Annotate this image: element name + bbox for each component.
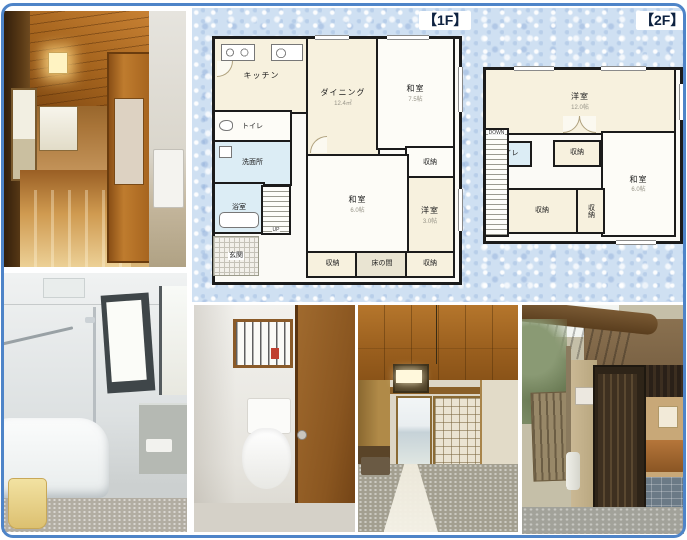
washing-machine [153, 149, 184, 207]
closet-top-2f: 収納 [553, 140, 601, 167]
room-label: トイレ [242, 123, 263, 131]
closet-bottom-left-1f: 収納 [306, 251, 359, 278]
wall-plaque [658, 406, 678, 429]
room-label: 収納 [326, 260, 340, 268]
hallway-left-doorway [11, 88, 37, 182]
hallway-door-glass-panel [114, 98, 144, 184]
toilet-door [295, 305, 355, 532]
floorplan-title-1f: 【1F】 [419, 11, 471, 30]
listing-collage: 【1F】 【2F】 キッチン ダイニング 12.4㎡ 和室 7.5帖 収納 洋室… [0, 0, 687, 540]
room-label: 洋室 [571, 92, 589, 101]
floorplan-2f: 洋室 12.0帖 トイレ 収納 和室 6.0帖 収納 収納 DOWN [483, 67, 683, 244]
room-yoshitsu-3: 洋室 3.0帖 [405, 176, 455, 255]
photo-japanese-room [358, 305, 518, 532]
stairs-down: DOWN [484, 128, 509, 237]
bathtub-icon [219, 212, 259, 228]
room-size: 6.0帖 [350, 205, 364, 214]
floor-items [361, 457, 390, 475]
room-label: 洗面所 [242, 159, 263, 167]
room-size: 12.4㎡ [334, 98, 352, 107]
room-label: 和室 [630, 175, 648, 184]
toilet-bowl [242, 428, 290, 489]
closet-bottom-right-1f: 収納 [405, 251, 455, 278]
window-marker [601, 66, 646, 71]
washbasin-icon [219, 146, 232, 158]
window-marker [458, 67, 463, 112]
door-knob [297, 430, 307, 440]
bathroom-window-right [159, 286, 187, 395]
room-label: ダイニング [321, 88, 366, 97]
room-label: 収納 [423, 159, 437, 167]
room-label: 玄関 [228, 252, 244, 260]
room-label: 洋室 [421, 206, 439, 215]
photo-toilet [194, 305, 355, 532]
window-marker [315, 35, 349, 40]
meter-box [575, 387, 593, 405]
window-sill-object [271, 348, 279, 359]
room-size: 3.0帖 [423, 216, 437, 225]
tatami-ceiling-seams [358, 305, 518, 380]
window-marker [458, 189, 463, 231]
shoji-screen [433, 396, 482, 466]
room-label: 床の間 [372, 260, 393, 268]
window-marker [616, 240, 656, 245]
ceiling-light-panel [396, 370, 422, 384]
noren-curtain [642, 365, 684, 397]
room-label: 和室 [349, 195, 367, 204]
room-label: 収納 [570, 149, 584, 157]
room-size: 12.0帖 [571, 102, 589, 111]
stone-pavement [522, 507, 684, 534]
toilet-window [233, 319, 294, 368]
photo-hallway [2, 11, 186, 267]
photo-bathroom [2, 273, 187, 532]
room-label: 収納 [423, 260, 437, 268]
room-washitsu-7-5: 和室 7.5帖 [376, 37, 455, 150]
room-label: キッチン [244, 71, 280, 80]
stairs-label: DOWN [488, 130, 506, 136]
stove-icon [221, 44, 255, 61]
toilet-icon [219, 120, 233, 131]
stairs-label: UP [272, 227, 281, 233]
room-size: 7.5帖 [408, 94, 422, 103]
tokonoma: 床の間 [355, 251, 409, 278]
shower-head [85, 317, 95, 323]
window-marker [387, 35, 429, 40]
closet-vertical-2f: 収納 [576, 188, 605, 234]
room-yoshitsu-12: 洋室 12.0帖 [484, 68, 676, 135]
stairs-up: UP [261, 185, 291, 235]
closet-right-1f: 収納 [405, 146, 455, 180]
closet-bottom-2f: 収納 [505, 188, 579, 234]
window-marker [514, 66, 554, 71]
toilet-wall-shading [194, 305, 236, 505]
floorplan-title-2f: 【2F】 [636, 11, 687, 30]
window-marker [679, 84, 684, 120]
floorplan-panel: 【1F】 【2F】 キッチン ダイニング 12.4㎡ 和室 7.5帖 収納 洋室… [192, 8, 684, 302]
room-washitsu-6: 和室 6.0帖 [306, 154, 409, 255]
room-washitsu-2f: 和室 6.0帖 [601, 131, 676, 237]
floorplan-1f: キッチン ダイニング 12.4㎡ 和室 7.5帖 収納 洋室 3.0帖 和室 6… [212, 36, 462, 285]
photo-entrance-exterior [522, 305, 684, 534]
light-wire [436, 305, 437, 364]
bathroom-ceiling-vent [43, 278, 86, 298]
bathroom-window-pane [107, 300, 148, 383]
toilet-floor [194, 503, 355, 533]
room-label: 収納 [586, 204, 594, 218]
room-size: 6.0帖 [631, 184, 645, 193]
room-genkan: 玄関 [213, 236, 259, 276]
kitchen-sink-icon [271, 44, 303, 61]
yellow-bucket [8, 478, 47, 529]
white-container [566, 452, 581, 491]
shower-rail [93, 307, 96, 424]
room-label: 収納 [535, 207, 549, 215]
ceiling-lamp [48, 52, 68, 74]
towel-bar [2, 326, 73, 346]
hallway-end-window [39, 106, 78, 152]
tatami-bright-doorway [396, 396, 432, 466]
lattice-sliding-door [598, 374, 637, 521]
hallway-laundry-room [149, 11, 186, 267]
room-label: 和室 [407, 84, 425, 93]
bathroom-shelf-item [146, 439, 172, 452]
room-label: 浴室 [232, 204, 246, 212]
